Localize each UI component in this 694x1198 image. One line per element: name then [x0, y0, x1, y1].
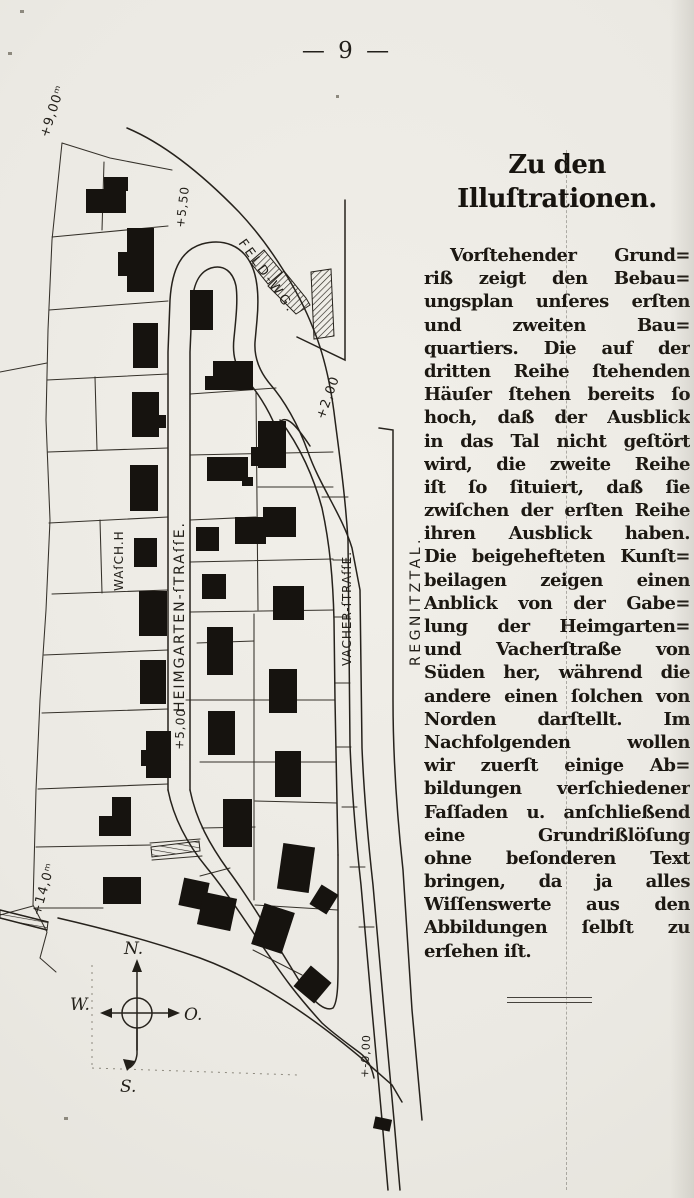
building — [197, 892, 237, 931]
body-line: Vorſtehender Grund= — [424, 244, 690, 267]
compass-arrowhead — [168, 1008, 180, 1018]
body-line: andere einen ſolchen von — [424, 685, 690, 708]
body-line: in das Tal nicht geſtört — [424, 430, 690, 453]
building — [213, 361, 253, 390]
parcel-line — [253, 950, 302, 975]
building — [133, 323, 158, 368]
building — [293, 965, 331, 1003]
body-line: ungsplan unſeres erſten — [424, 290, 690, 313]
elevation-plus-5-50: +5,50 — [173, 185, 192, 228]
parcel-line — [48, 448, 168, 452]
parcel-line — [0, 363, 47, 372]
parcel-line — [33, 143, 62, 972]
building — [269, 669, 297, 713]
building — [159, 415, 166, 428]
compass-label-w: W. — [70, 995, 90, 1015]
heading-line-2: Illuſtrationen. — [424, 182, 690, 216]
building — [190, 290, 213, 330]
building — [208, 711, 235, 755]
building — [141, 750, 147, 766]
elevation-zero: +-0,00 — [358, 1034, 373, 1078]
compass-label-o: O. — [184, 1005, 202, 1025]
parcel-line — [100, 520, 102, 593]
building-label-waschhaus: WAſCH.H — [112, 530, 126, 591]
body-line: ihren Ausblick haben. — [424, 522, 690, 545]
body-line: Anblick von der Gabe= — [424, 592, 690, 615]
hatched-building — [311, 269, 334, 339]
body-line: Norden darſtellt. Im — [424, 708, 690, 731]
parcel-line — [44, 650, 168, 655]
body-line: zwiſchen der erſten Reihe — [424, 499, 690, 522]
compass-label-n: N. — [123, 939, 143, 959]
body-line: erſehen iſt. — [424, 940, 690, 963]
hatched-building — [151, 841, 200, 857]
article-body: Vorſtehender Grund=riß zeigt den Bebau=u… — [424, 244, 690, 963]
building — [112, 797, 131, 836]
street-label-heimgartenstrasse: HEIMGARTEN-ſTRAſſE. — [172, 521, 188, 712]
parcel-line — [49, 301, 168, 310]
building — [104, 177, 128, 191]
body-line: Nachfolgenden wollen — [424, 731, 690, 754]
building — [118, 252, 128, 276]
building — [263, 507, 296, 537]
building — [251, 903, 295, 954]
parcel-line — [255, 801, 337, 803]
compass-label-s: S. — [120, 1077, 136, 1097]
elevation-plus-2-00: +2,00 — [314, 374, 343, 421]
body-line: bildungen verſchiedener — [424, 777, 690, 800]
parcel-line — [42, 709, 168, 713]
building — [202, 574, 226, 599]
parcel-line — [190, 559, 333, 562]
body-line: Häuſer ſtehen bereits ſo — [424, 383, 690, 406]
page-fold-line — [566, 150, 567, 1190]
parcel-line — [38, 784, 168, 789]
building — [139, 591, 167, 636]
body-line: wird, die zweite Reihe — [424, 453, 690, 476]
building — [277, 843, 315, 893]
street-line — [379, 428, 422, 1120]
section-divider-rule — [507, 997, 592, 1003]
parcel-line — [49, 517, 168, 523]
body-line: beilagen zeigen einen — [424, 569, 690, 592]
street-label-vacherstrasse: VACHER-ſTRAſſE. — [340, 551, 354, 666]
compass-arrowhead — [100, 1008, 112, 1018]
body-line: wir zuerſt einige Ab= — [424, 754, 690, 777]
ink-speck — [336, 95, 339, 98]
body-line: iſt ſo ſituiert, daß ſie — [424, 476, 690, 499]
article-heading: Zu den Illuſtrationen. — [424, 148, 690, 216]
body-line: eine Grundrißlöſung — [424, 824, 690, 847]
body-line: riß zeigt den Bebau= — [424, 267, 690, 290]
ink-speck — [64, 1117, 68, 1120]
building — [205, 376, 214, 390]
building — [146, 731, 171, 778]
parcel-line — [95, 377, 97, 450]
parcel-line — [256, 392, 258, 610]
building — [130, 465, 158, 511]
body-line: lung der Heimgarten= — [424, 615, 690, 638]
parcel-line — [152, 856, 202, 860]
building — [196, 527, 219, 551]
parcel-line — [190, 610, 334, 612]
compass-arrowhead — [132, 959, 142, 972]
building — [242, 477, 253, 486]
building — [235, 517, 266, 544]
building — [258, 421, 286, 468]
body-line: dritten Reihe ſtehenden — [424, 360, 690, 383]
body-line: bringen, da ja alles — [424, 870, 690, 893]
building — [373, 1116, 392, 1131]
body-line: und zweiten Bau= — [424, 314, 690, 337]
building — [251, 447, 259, 466]
body-line: und Vacherſtraße von — [424, 638, 690, 661]
building — [134, 538, 157, 567]
pencil-guide-line — [92, 1068, 298, 1075]
heading-line-1: Zu den — [424, 148, 690, 182]
building — [207, 627, 233, 675]
elevation-plus-9-00: +9,00ᵐ — [38, 83, 69, 139]
parcel-line — [62, 143, 172, 170]
building — [223, 799, 252, 847]
building — [86, 189, 126, 213]
body-line: Süden her, während die — [424, 661, 690, 684]
body-line: Faſſaden u. anſchließend — [424, 801, 690, 824]
building — [273, 586, 304, 620]
ink-speck — [20, 10, 24, 13]
building — [275, 751, 301, 797]
building — [103, 877, 141, 904]
article-column: Zu den Illuſtrationen. Vorſtehender Grun… — [424, 148, 690, 963]
body-line: Wiſſenswerte aus den — [424, 893, 690, 916]
body-line: quartiers. Die auf der — [424, 337, 690, 360]
building — [207, 457, 248, 481]
scanned-book-page: — 9 — +9,00ᵐ+5,50FELD-WG.+2,00WAſCH.HHEI… — [0, 0, 694, 1198]
parcel-line — [47, 374, 168, 380]
building — [140, 660, 166, 704]
parcel-line — [36, 845, 151, 847]
body-line: ohne beſonderen Text — [424, 847, 690, 870]
body-line: Die beigehefteten Kunſt= — [424, 545, 690, 568]
parcel-line — [200, 868, 230, 876]
body-line: Abbildungen ſelbſt zu — [424, 916, 690, 939]
building — [99, 816, 113, 836]
binding-shadow — [670, 0, 694, 1198]
elevation-plus-5-00: +5,00 — [172, 708, 188, 750]
area-label-regnitztal: REGNITZTAL. — [408, 536, 424, 666]
building — [132, 392, 159, 437]
building — [127, 228, 154, 292]
body-line: hoch, daß der Ausblick — [424, 406, 690, 429]
ink-speck — [8, 52, 12, 55]
